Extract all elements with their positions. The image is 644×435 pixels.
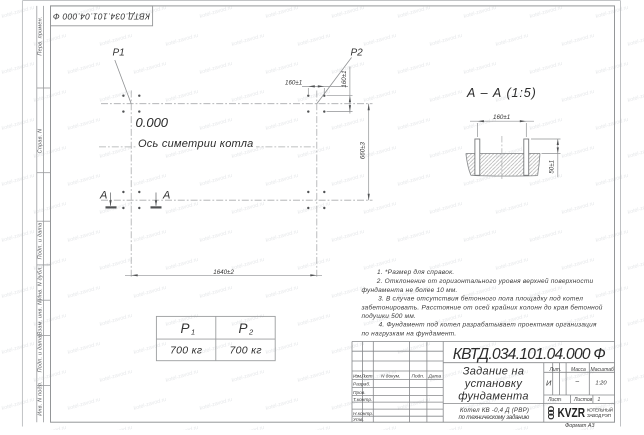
svg-text:–: – [575,378,580,385]
svg-text:Задание на: Задание на [463,365,525,377]
svg-text:Лит.: Лит. [549,367,562,373]
svg-text:660±3: 660±3 [360,141,367,159]
svg-text:А – А (1:5): А – А (1:5) [466,86,537,100]
svg-text:Взам. инв. N: Взам. инв. N [38,301,44,335]
svg-text:160±1: 160±1 [285,80,302,87]
svg-text:Лист: Лист [547,397,561,403]
svg-text:0.000: 0.000 [136,115,169,130]
svg-text:Масштаб: Масштаб [591,367,615,373]
svg-text:Н.контр.: Н.контр. [353,411,373,417]
svg-text:1: 1 [598,397,601,403]
svg-text:Инв. N подл.: Инв. N подл. [38,381,44,416]
svg-text:4. Фундамент под котел разраба: 4. Фундамент под котел разрабатывает про… [379,321,597,329]
svg-text:А: А [162,190,170,202]
svg-text:И: И [546,379,552,388]
svg-text:Подп. и дата: Подп. и дата [38,336,44,373]
svg-text:Изм.Лист: Изм.Лист [353,374,373,380]
svg-text:1640±2: 1640±2 [213,269,234,276]
svg-text:50±1: 50±1 [549,160,556,174]
svg-text:KVZR: KVZR [558,405,586,420]
svg-text:Пров.: Пров. [353,390,366,396]
svg-text:Масса: Масса [571,367,586,373]
svg-text:3. В случае отсутствия бетонно: 3. В случае отсутствия бетонного пола пл… [378,295,583,303]
svg-text:2. Отклонение от горизонтально: 2. Отклонение от горизонтального уровня … [376,277,594,285]
svg-text:Подп. и дата: Подп. и дата [38,223,44,260]
svg-text:Р1: Р1 [113,48,125,59]
svg-text:фундамента не более 10 мм.: фундамента не более 10 мм. [362,286,458,294]
svg-text:Дата: Дата [428,374,442,380]
svg-text:160±1: 160±1 [493,114,510,121]
svg-text:Ось симетрии котла: Ось симетрии котла [138,138,254,150]
svg-text:1. *Размер для справок.: 1. *Размер для справок. [377,268,454,276]
svg-text:700 кг: 700 кг [230,345,262,357]
svg-text:забетонировать. Расстояние от: забетонировать. Расстояние от осей крайн… [361,303,603,311]
svg-text:КВТД.034.101.04.000 Ф: КВТД.034.101.04.000 Ф [53,12,150,22]
svg-text:Утв.: Утв. [353,417,364,423]
svg-text:1:20: 1:20 [595,380,607,386]
svg-text:ЗАВОД РЭП: ЗАВОД РЭП [587,413,611,418]
svg-text:Инв. N дубл.: Инв. N дубл. [38,266,44,300]
svg-text:фундамента: фундамента [458,390,529,402]
svg-text:Р2: Р2 [351,48,364,59]
svg-text:Разраб.: Разраб. [353,382,370,388]
svg-text:КВТД.034.101.04.000 Ф: КВТД.034.101.04.000 Ф [453,346,606,363]
svg-text:по нагрузкам на фундамент.: по нагрузкам на фундамент. [362,329,457,337]
svg-text:Справ. N: Справ. N [38,129,44,154]
svg-text:по техническому заданию: по техническому заданию [459,414,530,421]
svg-text:подушки 500 мм.: подушки 500 мм. [362,312,417,320]
svg-text:Подп.: Подп. [412,374,425,380]
svg-text:700 кг: 700 кг [170,345,202,357]
svg-text:Формат А3: Формат А3 [565,423,595,429]
svg-text:КОТЕЛЬНЫЙ: КОТЕЛЬНЫЙ [587,406,613,413]
svg-text:установку: установку [464,378,524,390]
svg-text:Листов: Листов [573,397,593,403]
svg-text:N докум.: N докум. [381,374,400,380]
svg-text:А: А [99,190,107,202]
svg-text:160±1: 160±1 [341,70,348,87]
svg-text:Т.контр.: Т.контр. [353,397,372,403]
svg-text:Перв. примен.: Перв. примен. [38,16,44,55]
svg-text:Котел КВ -0,4 Д (РВР): Котел КВ -0,4 Д (РВР) [460,407,529,414]
svg-text:ООО: ООО [546,405,556,419]
